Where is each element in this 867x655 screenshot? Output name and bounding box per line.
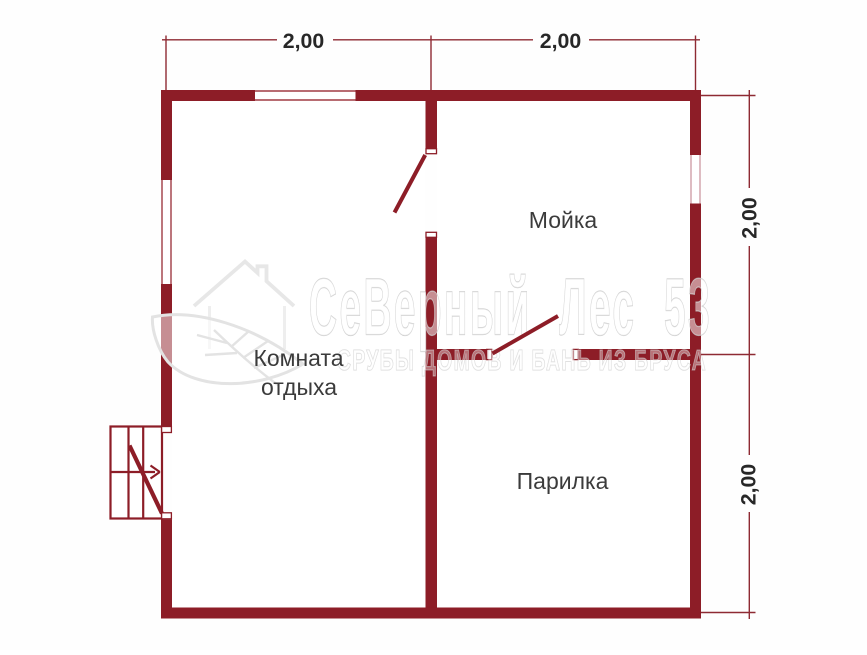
svg-text:СРУБЫ ДОМОВ И БАНЬ ИЗ БРУСА: СРУБЫ ДОМОВ И БАНЬ ИЗ БРУСА xyxy=(337,345,707,377)
svg-text:2,00: 2,00 xyxy=(738,197,762,238)
svg-text:2,00: 2,00 xyxy=(283,29,324,53)
svg-text:отдыха: отдыха xyxy=(261,374,337,400)
svg-text:СеВерный Лес 53: СеВерный Лес 53 xyxy=(309,263,712,353)
svg-text:2,00: 2,00 xyxy=(540,29,581,53)
svg-text:2,00: 2,00 xyxy=(737,464,761,505)
svg-text:Комната: Комната xyxy=(253,345,343,371)
svg-text:Мойка: Мойка xyxy=(529,207,598,233)
svg-text:Парилка: Парилка xyxy=(517,468,609,494)
